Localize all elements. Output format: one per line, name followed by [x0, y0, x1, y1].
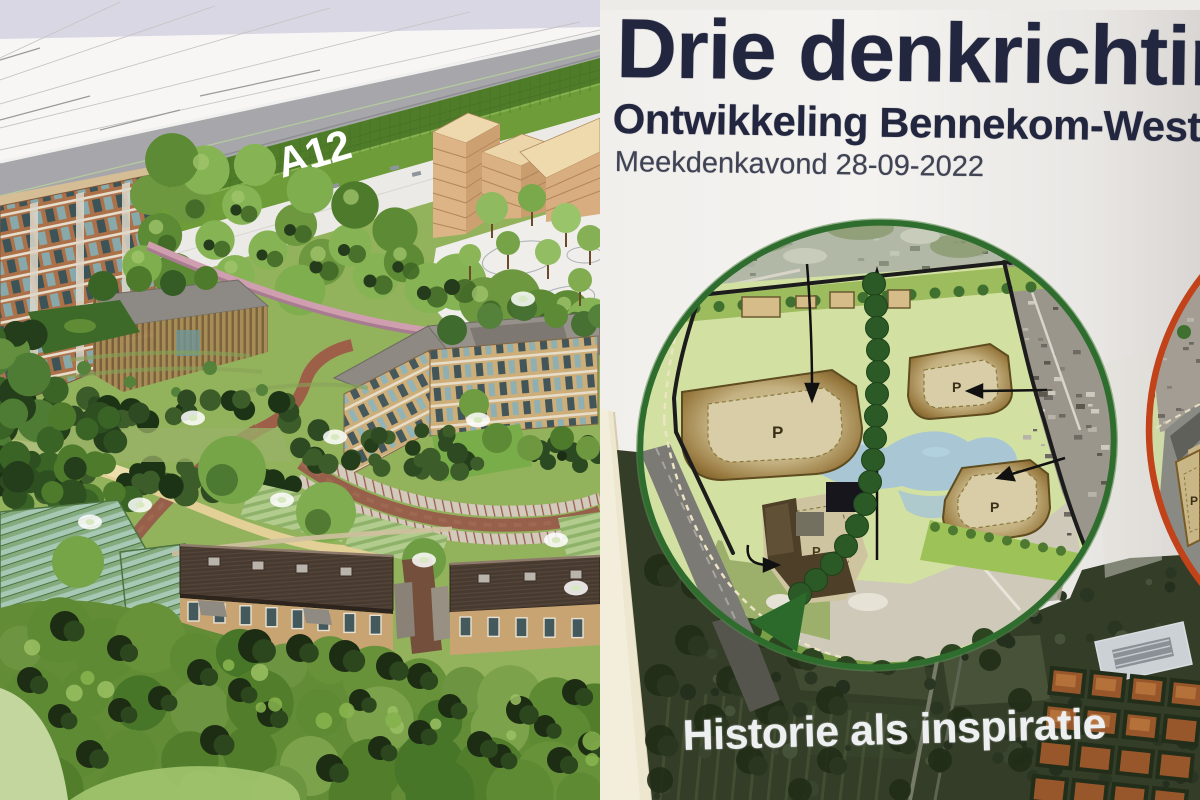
- svg-text:P: P: [812, 544, 821, 559]
- svg-text:P: P: [952, 379, 961, 395]
- svg-text:P: P: [772, 423, 783, 442]
- svg-text:P: P: [990, 499, 999, 515]
- svg-text:P: P: [1190, 494, 1198, 508]
